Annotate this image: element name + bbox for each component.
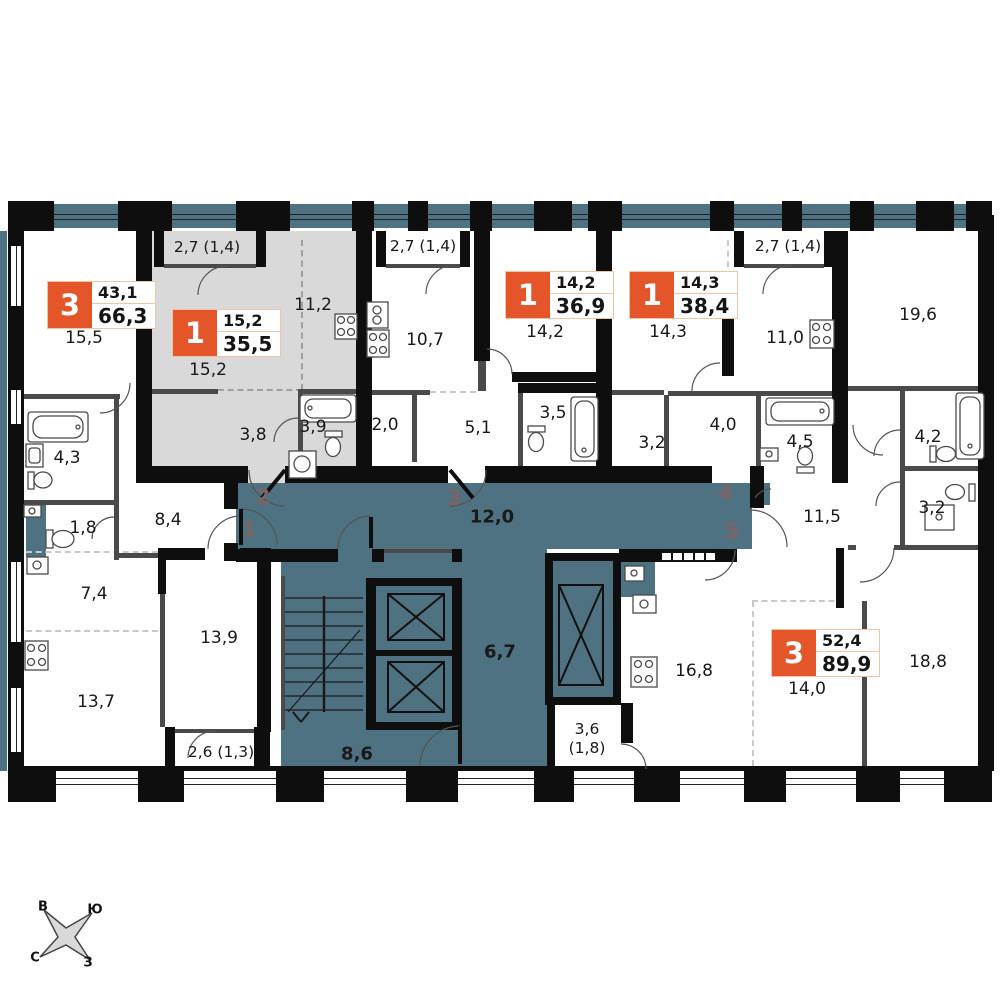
total-area: 38,4 bbox=[674, 294, 737, 318]
compass-east-label: В bbox=[38, 900, 48, 915]
wall bbox=[376, 231, 386, 267]
room-area-label: 14,0 bbox=[788, 679, 826, 699]
total-area: 66,3 bbox=[92, 304, 155, 328]
partition bbox=[114, 394, 119, 560]
wall bbox=[744, 766, 786, 802]
partition bbox=[848, 386, 985, 391]
wall bbox=[138, 766, 184, 802]
stove-icon bbox=[810, 320, 834, 348]
wall bbox=[750, 466, 764, 508]
wall bbox=[512, 372, 598, 382]
toilet-icon bbox=[28, 472, 52, 489]
partition bbox=[478, 361, 486, 391]
bathtub-icon bbox=[571, 397, 598, 461]
lobby-area-label: 6,7 bbox=[484, 642, 516, 663]
wall bbox=[8, 201, 54, 231]
partition bbox=[412, 395, 417, 462]
wall bbox=[722, 318, 734, 376]
room-area-label: 14,3 bbox=[649, 322, 687, 342]
wall bbox=[276, 766, 324, 802]
highlighted-apartment-area bbox=[152, 231, 356, 483]
room-area-label: 10,7 bbox=[406, 330, 444, 350]
partition bbox=[298, 389, 358, 394]
partition bbox=[372, 390, 430, 395]
wall bbox=[836, 548, 844, 608]
wall bbox=[470, 201, 492, 231]
rooms-count: 3 bbox=[772, 630, 816, 676]
window-glazing-line bbox=[16, 688, 17, 752]
living-area: 15,2 bbox=[217, 310, 280, 332]
zone-divider bbox=[218, 389, 302, 391]
partition bbox=[175, 729, 257, 733]
wall bbox=[136, 231, 152, 483]
balcony-area-label: 2,6 (1,3) bbox=[188, 743, 254, 761]
wall bbox=[366, 578, 462, 586]
zone-divider bbox=[26, 630, 158, 632]
room-area-label: 15,2 bbox=[189, 360, 227, 380]
wall bbox=[534, 766, 574, 802]
wall bbox=[236, 201, 290, 231]
room-area-label: 3,8 bbox=[239, 425, 266, 445]
room-area-label: 1,8 bbox=[69, 518, 96, 538]
wall bbox=[165, 727, 175, 768]
floor-plan: 3 43,1 66,3 1 15,2 35,5 1 14,2 36,9 1 14… bbox=[0, 0, 1000, 1000]
partition bbox=[164, 264, 256, 268]
wall bbox=[8, 766, 56, 802]
partition bbox=[668, 391, 834, 396]
wall bbox=[224, 466, 248, 483]
zone-divider bbox=[430, 391, 476, 393]
partition bbox=[518, 390, 523, 466]
wall bbox=[850, 201, 874, 231]
room-area-label: 7,4 bbox=[80, 584, 107, 604]
room-area-label: 14,2 bbox=[526, 322, 564, 342]
room-area-label: 2,0 bbox=[371, 415, 398, 435]
stove-icon bbox=[631, 657, 657, 687]
partition bbox=[612, 390, 664, 395]
sink-icon bbox=[633, 595, 656, 613]
wall bbox=[158, 548, 166, 594]
wall bbox=[257, 548, 271, 732]
room-area-label: 4,0 bbox=[709, 415, 736, 435]
wall bbox=[596, 231, 612, 483]
room-area-label: 11,5 bbox=[803, 507, 841, 527]
rooms-count: 3 bbox=[48, 282, 92, 328]
room-area-label: 15,5 bbox=[65, 328, 103, 348]
wall bbox=[978, 215, 994, 771]
stove-icon bbox=[25, 641, 48, 670]
wall bbox=[452, 549, 462, 562]
window-glazing-line bbox=[16, 390, 17, 424]
apartment-badge: 1 14,2 36,9 bbox=[506, 272, 613, 318]
facade-band-left bbox=[0, 231, 7, 771]
balcony-area-label: 2,7 (1,4) bbox=[755, 237, 821, 255]
window-glazing-line bbox=[16, 246, 17, 306]
toilet-icon bbox=[528, 426, 545, 452]
wall bbox=[547, 703, 555, 766]
unit-number: 4 bbox=[718, 481, 733, 505]
wall bbox=[366, 650, 462, 656]
zone-divider bbox=[752, 600, 844, 602]
wall bbox=[372, 549, 384, 562]
corridor-area-label: 12,0 bbox=[470, 507, 514, 528]
window-glazing-line bbox=[16, 562, 17, 642]
room-area-label: 11,2 bbox=[294, 295, 332, 315]
partition bbox=[744, 264, 824, 268]
wall bbox=[856, 766, 900, 802]
wall bbox=[613, 553, 621, 703]
wall bbox=[518, 383, 598, 393]
technical-room-area bbox=[621, 559, 655, 597]
rooms-count: 1 bbox=[630, 272, 674, 318]
sink-icon bbox=[760, 448, 778, 461]
wall bbox=[285, 466, 448, 483]
wall bbox=[406, 766, 458, 802]
wall bbox=[588, 201, 622, 231]
toilet-icon bbox=[946, 484, 976, 501]
room-area-label: 4,5 bbox=[786, 432, 813, 452]
wall bbox=[782, 201, 802, 231]
partition bbox=[894, 545, 985, 550]
partition bbox=[152, 389, 218, 394]
apartment-badge: 3 43,1 66,3 bbox=[48, 282, 155, 328]
partition bbox=[664, 395, 669, 466]
wall bbox=[460, 231, 470, 267]
partition bbox=[281, 576, 285, 730]
room-area-label: 8,4 bbox=[154, 510, 181, 530]
room-area-label: 3,2 bbox=[638, 433, 665, 453]
wall bbox=[352, 201, 374, 231]
rooms-count: 1 bbox=[506, 272, 550, 318]
wall bbox=[832, 231, 848, 483]
sink-icon bbox=[27, 557, 48, 574]
partition bbox=[24, 500, 114, 505]
living-area: 14,2 bbox=[550, 272, 613, 294]
wall bbox=[824, 231, 834, 267]
room-area-label: 4,2 bbox=[914, 427, 941, 447]
wall bbox=[254, 727, 270, 768]
elevator-shaft-area bbox=[547, 557, 619, 697]
bathtub-icon bbox=[766, 398, 834, 425]
wall bbox=[408, 201, 428, 231]
wall bbox=[534, 201, 572, 231]
apartment-badge: 1 14,3 38,4 bbox=[630, 272, 737, 318]
room-area-label: 13,9 bbox=[200, 628, 238, 648]
rooms-count: 1 bbox=[173, 310, 217, 356]
partition bbox=[756, 392, 761, 466]
wall bbox=[734, 231, 744, 267]
balcony-area-label: 2,7 (1,4) bbox=[174, 238, 240, 256]
total-area: 89,9 bbox=[816, 652, 879, 676]
room-area-label: 19,6 bbox=[899, 305, 937, 325]
room-area-label: 11,0 bbox=[766, 328, 804, 348]
wall bbox=[545, 553, 553, 703]
compass-icon bbox=[40, 910, 92, 960]
wall bbox=[485, 466, 712, 483]
partition bbox=[848, 545, 856, 550]
unit-number: 1 bbox=[242, 517, 257, 541]
bathtub-icon bbox=[28, 412, 88, 442]
compass-north-label: С bbox=[30, 951, 40, 966]
partition bbox=[114, 553, 158, 558]
room-area-label: 3,5 bbox=[539, 403, 566, 423]
partition bbox=[862, 601, 867, 766]
wall bbox=[621, 703, 633, 743]
partition bbox=[905, 466, 985, 471]
room-area-label: 13,7 bbox=[77, 692, 115, 712]
partition bbox=[24, 394, 120, 399]
living-area: 14,3 bbox=[674, 272, 737, 294]
sink-icon bbox=[26, 444, 43, 467]
duct-area bbox=[26, 505, 46, 557]
room-area-label: 5,1 bbox=[464, 418, 491, 438]
wall bbox=[256, 231, 266, 267]
living-area: 52,4 bbox=[816, 630, 879, 652]
zone-divider bbox=[752, 601, 754, 766]
wall bbox=[545, 553, 621, 561]
wall bbox=[356, 231, 372, 483]
stairs-area-label: 8,6 bbox=[341, 744, 373, 765]
wall bbox=[136, 466, 226, 483]
wall bbox=[634, 766, 680, 802]
room-area-label: 18,8 bbox=[909, 652, 947, 672]
unit-number: 5 bbox=[725, 519, 740, 543]
zone-divider bbox=[301, 240, 303, 390]
room-area-label: 4,3 bbox=[53, 448, 80, 468]
apartment-badge: 3 52,4 89,9 bbox=[772, 630, 879, 676]
total-area: 35,5 bbox=[217, 332, 280, 356]
balcony-area-label: 2,7 (1,4) bbox=[390, 237, 456, 255]
wall bbox=[474, 231, 490, 361]
room-area-label: 16,8 bbox=[675, 661, 713, 681]
wall bbox=[118, 201, 172, 231]
compass-west-label: З bbox=[83, 956, 92, 971]
partition bbox=[386, 264, 460, 268]
living-area: 43,1 bbox=[92, 282, 155, 304]
wall bbox=[366, 722, 462, 730]
total-area: 36,9 bbox=[550, 294, 613, 318]
balcony-area-label: 3,6 bbox=[575, 720, 600, 738]
compass-south-label: Ю bbox=[87, 903, 102, 918]
room-area-label: 3,2 bbox=[918, 498, 945, 518]
balcony-area-label: (1,8) bbox=[569, 739, 606, 757]
wall bbox=[154, 231, 164, 267]
wall bbox=[944, 766, 992, 802]
room-area-label: 3,9 bbox=[299, 417, 326, 437]
partition bbox=[384, 549, 452, 553]
wall bbox=[710, 201, 734, 231]
toilet-icon bbox=[930, 446, 956, 462]
partition bbox=[160, 592, 165, 727]
unit-number: 2 bbox=[256, 485, 271, 509]
vent-shaft bbox=[704, 551, 717, 562]
wall bbox=[545, 697, 621, 705]
wall bbox=[224, 483, 238, 509]
wall bbox=[916, 201, 954, 231]
unit-number: 3 bbox=[447, 486, 462, 510]
apartment-badge: 1 15,2 35,5 bbox=[173, 310, 280, 356]
